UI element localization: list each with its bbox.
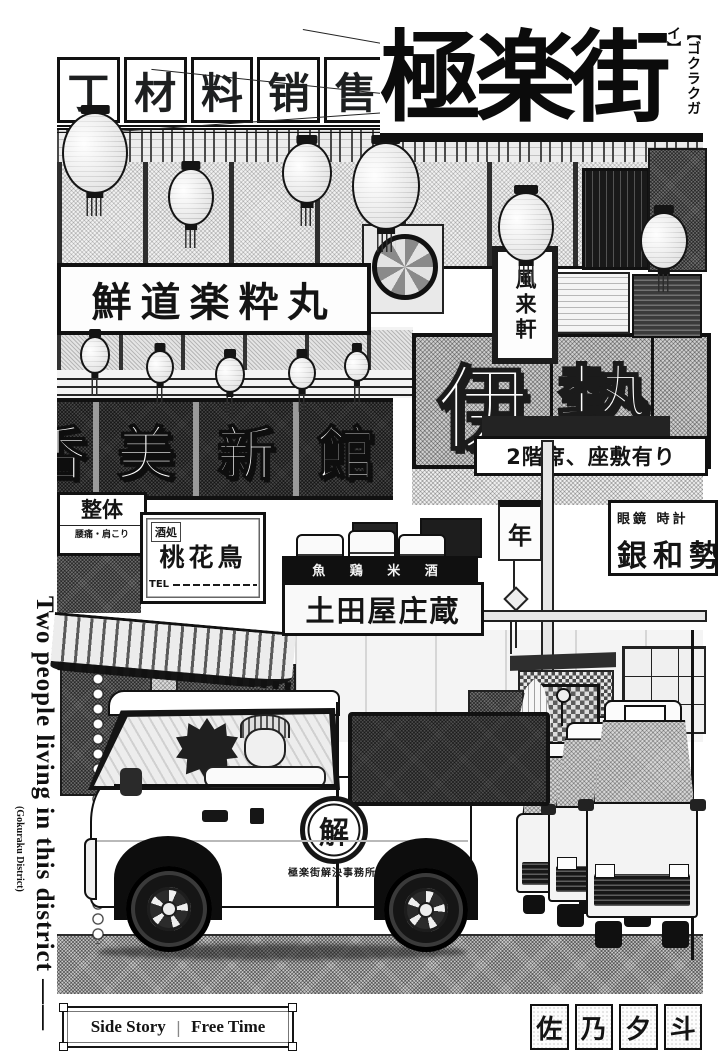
window-sill-line [114,784,336,787]
hotel-panel: 新 [199,402,299,496]
paper-lantern-icon [344,350,370,382]
author-char: 夕 [625,1009,651,1046]
car-grille [594,874,690,906]
car-mirror [690,799,706,811]
knot-charm-icon [500,560,528,656]
seitai-sub-text: 腰痛・肩こり [60,526,144,544]
sign-char: 料 [201,60,243,121]
seitai-main-text: 整体 [60,495,144,526]
margin-note-main: Two people living in this district —— [22,596,58,1010]
van-logo-char: 解 [319,808,349,852]
van-logo: 解 [300,796,368,864]
van-side-window [348,712,550,806]
tavern-items-band: 魚 鶏 米 酒 [282,556,478,582]
van-company-name: 極楽街解決事務所 [274,864,390,878]
manga-page: 丁 材 料 销 售 極楽街 【ゴクラクガイ】 風来軒 鮮道楽粋丸 伊 勢 [0,0,727,1062]
seat-notice-sign: 2階席、座敷有り [474,436,708,476]
izakaya-tel-label: TEL [149,579,169,590]
side-mirror [120,768,142,796]
car-headlight [595,864,615,878]
seitai-sign: 整体 腰痛・肩こり [57,492,147,556]
chapter-separator: | [176,1018,181,1037]
front-bumper [84,838,97,900]
car-mirror [578,799,594,811]
izakaya-name-text: 桃花鳥 [159,538,246,574]
sign-char: 销 [268,60,310,121]
izakaya-type-label: 酒処 [151,522,181,542]
driver-head [244,728,286,768]
hotel-char: 館 [317,407,375,491]
paper-lantern-icon [62,112,128,194]
front-wheel [126,866,212,952]
hanging-banner: 年 [498,500,542,561]
hotel-panel: 香 [57,402,99,496]
author-char: 乃 [581,1009,607,1046]
hotel-char: 香 [57,407,87,491]
sign-panel: 销 [257,57,320,123]
author-char-box: 乃 [575,1004,614,1050]
optician-sign: 眼鏡 時計 銀和勢 [608,500,718,576]
wheel-hub [404,888,448,932]
paper-lantern-icon [352,142,420,230]
author-name: 佐 乃 夕 斗 [530,1004,702,1050]
hotel-char: 新 [217,407,275,491]
corner-square [59,1003,68,1012]
author-char-box: 斗 [664,1004,703,1050]
ac-unit [552,272,630,334]
background-sign [482,416,670,438]
author-char: 斗 [670,1009,696,1046]
door-handle [202,810,228,822]
kei-van: 解 極楽街解決事務所 [84,690,476,962]
paper-lantern-icon [288,356,316,390]
banner-char: 年 [508,516,532,551]
title-block: 極楽街 【ゴクラクガイ】 [380,26,715,138]
tel-number-dashes [173,581,257,589]
series-title: 極楽街 [380,26,665,138]
car-tire [595,921,622,948]
hotel-neon-sign: 香 美 新 館 [57,398,393,500]
sign-panel: 材 [124,57,187,123]
calligraphy-text: 鮮道楽粋丸 [92,270,337,328]
title-underline-bar [380,133,703,142]
van-company-text: 極楽街解決事務所 [288,864,376,879]
calligraphy-sign: 鮮道楽粋丸 [57,263,371,335]
corner-square [59,1042,68,1051]
author-char-box: 佐 [530,1004,569,1050]
open-dark-window [582,168,650,270]
optician-name-text: 銀和勢 [617,531,709,575]
tavern-name-text: 土田屋庄蔵 [305,588,460,630]
rear-wheel [384,868,468,952]
car-windshield [593,720,696,813]
dark-shopfront [57,553,141,613]
tavern-items-text: 魚 鶏 米 酒 [312,560,448,579]
chapter-label: Side Story [91,1017,166,1037]
horizontal-pipe [455,610,707,622]
seat-notice-text: 2階席、座敷有り [506,441,676,471]
paper-lantern-icon [640,212,688,270]
sign-panel: 料 [191,57,254,123]
hotel-char: 美 [117,407,175,491]
parked-car [586,700,698,948]
author-char-box: 夕 [619,1004,658,1050]
car-tire [557,904,584,927]
author-char: 佐 [536,1009,562,1046]
car-headlight [669,864,689,878]
car-headlight [557,857,577,869]
car-tire [523,895,545,914]
optician-items-text: 眼鏡 時計 [617,508,709,527]
izakaya-sign: 酒処 桃花鳥 TEL [140,512,266,604]
wheel-hub [147,887,192,932]
paper-lantern-icon [80,336,110,374]
chapter-title-box: Side Story | Free Time [62,1006,294,1048]
chapter-title: Free Time [191,1017,265,1037]
paper-lantern-icon [215,356,245,393]
hotel-panel: 美 [99,402,199,496]
hotel-panel: 館 [299,402,393,496]
paper-lantern-icon [282,142,332,204]
door-handle [250,808,264,824]
paper-lantern-icon [498,192,554,262]
car-tire [662,921,689,948]
series-title-furigana: 【ゴクラクガイ】 [663,26,703,136]
paper-lantern-icon [168,168,214,226]
corner-square [288,1042,297,1051]
corner-square [288,1003,297,1012]
margin-note-sub: (Gokuraku District) [10,806,25,902]
tavern-sign: 土田屋庄蔵 [282,582,484,636]
paper-lantern-icon [146,350,174,384]
chapter-title-inner-border: Side Story | Free Time [67,1011,289,1043]
